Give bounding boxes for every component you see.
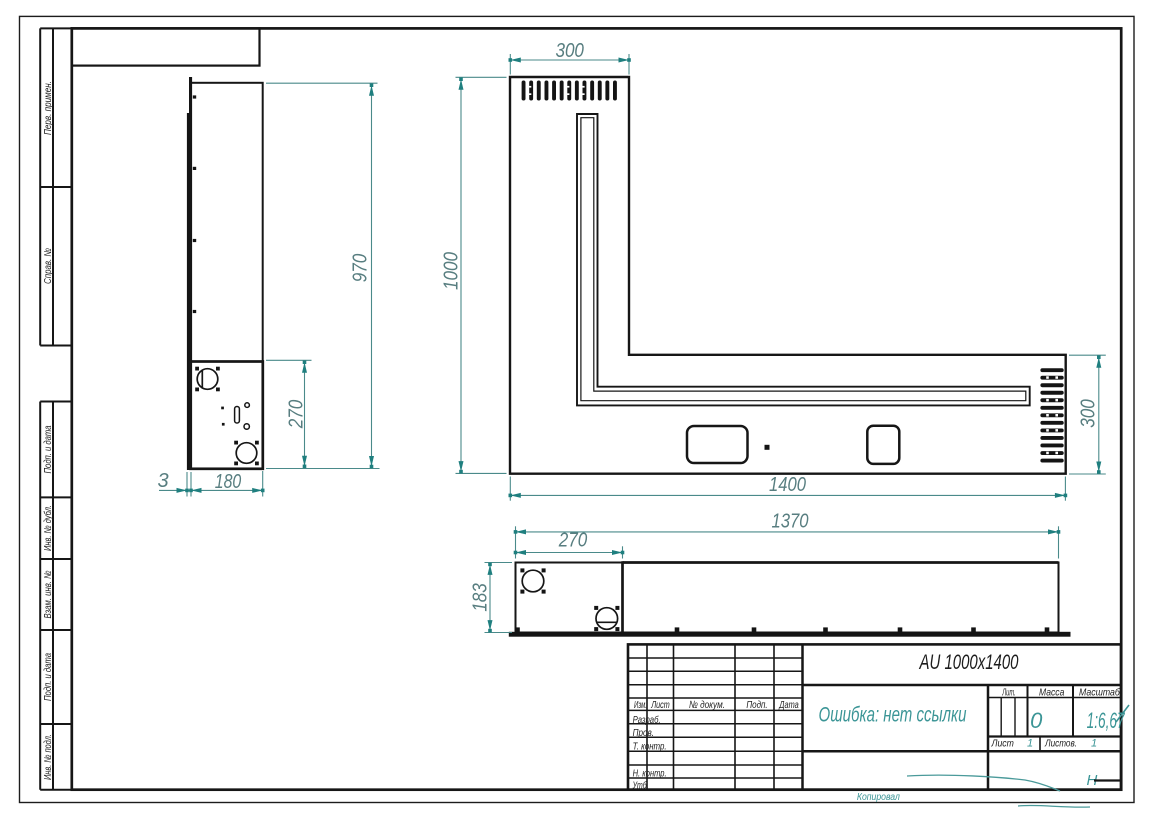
svg-text:1: 1 xyxy=(1091,738,1097,750)
svg-text:Дата: Дата xyxy=(779,699,799,711)
svg-text:1:6,67: 1:6,67 xyxy=(1087,708,1125,733)
svg-text:Пров.: Пров. xyxy=(633,727,654,739)
svg-text:Копировал: Копировал xyxy=(857,792,900,803)
svg-text:0: 0 xyxy=(1030,708,1043,733)
svg-text:Листов.: Листов. xyxy=(1044,738,1077,750)
svg-text:3: 3 xyxy=(157,470,168,492)
svg-text:Подп.: Подп. xyxy=(746,699,767,711)
svg-text:300: 300 xyxy=(1077,399,1099,428)
svg-text:Т. контр.: Т. контр. xyxy=(633,741,667,753)
svg-text:1400: 1400 xyxy=(769,474,806,496)
svg-text:Ошибка: нет ссылки: Ошибка: нет ссылки xyxy=(819,704,967,727)
svg-text:Инв. № подл.: Инв. № подл. xyxy=(43,734,54,780)
svg-text:№ докум.: № докум. xyxy=(689,699,725,711)
svg-text:Лист: Лист xyxy=(651,699,670,711)
svg-text:Лит.: Лит. xyxy=(1002,687,1016,699)
svg-text:Инв. № дубл.: Инв. № дубл. xyxy=(42,505,54,551)
svg-text:Подп. и дата: Подп. и дата xyxy=(43,425,54,473)
svg-text:1000: 1000 xyxy=(440,252,462,290)
svg-text:Разраб.: Разраб. xyxy=(633,714,661,726)
svg-text:Изм.: Изм. xyxy=(634,699,647,711)
svg-text:Взам. инв. №: Взам. инв. № xyxy=(43,570,54,618)
svg-text:180: 180 xyxy=(215,471,242,493)
svg-text:Масса: Масса xyxy=(1039,687,1064,699)
svg-text:300: 300 xyxy=(555,40,584,62)
svg-text:Перв. примен.: Перв. примен. xyxy=(43,81,54,135)
svg-text:270: 270 xyxy=(558,530,587,552)
svg-text:270: 270 xyxy=(285,400,307,429)
svg-text:183: 183 xyxy=(469,583,491,612)
svg-text:Подп. и дата: Подп. и дата xyxy=(43,653,54,701)
svg-text:970: 970 xyxy=(349,254,371,283)
svg-text:Масштаб: Масштаб xyxy=(1079,687,1121,699)
svg-text:1: 1 xyxy=(1027,738,1033,750)
svg-text:Н. контр.: Н. контр. xyxy=(633,768,667,780)
svg-text:Лист: Лист xyxy=(991,738,1014,750)
svg-text:Справ. №: Справ. № xyxy=(43,248,54,284)
svg-text:1370: 1370 xyxy=(772,511,809,533)
svg-text:AU 1000x1400: AU 1000x1400 xyxy=(918,651,1019,674)
svg-text:Утб.: Утб. xyxy=(632,780,649,792)
